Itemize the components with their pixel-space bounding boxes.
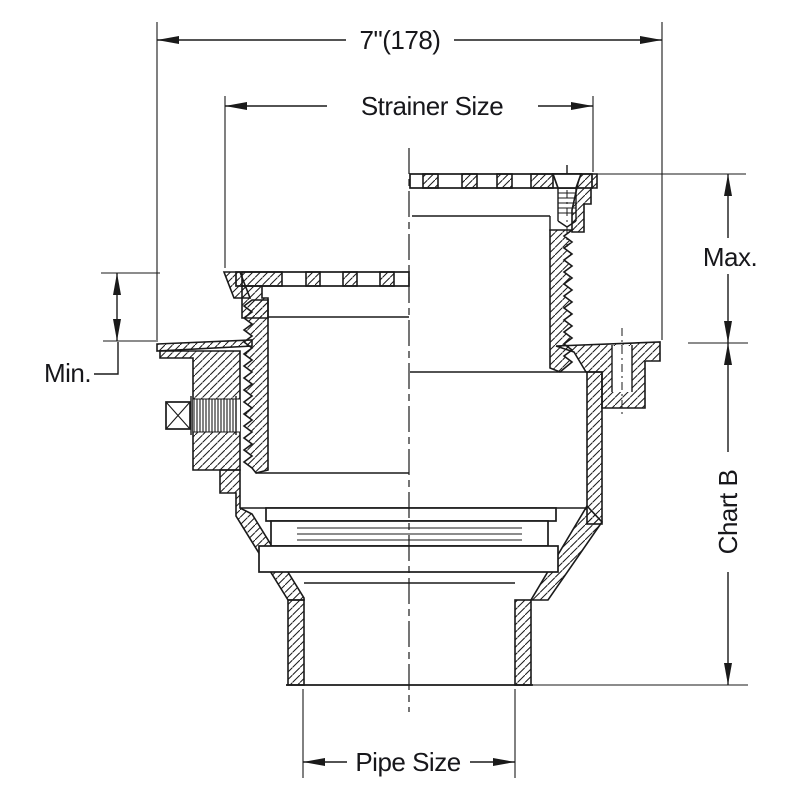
outlet-pipe-wall-left	[288, 600, 304, 685]
drain-cross-section-drawing: 7"(178) Strainer Size Max. Chart B Min.	[0, 0, 800, 800]
dim-label-total-width: 7"(178)	[360, 25, 441, 55]
floor-flange-right	[556, 342, 660, 408]
min-leader-line	[94, 342, 118, 374]
dim-label-chart-b: Chart B	[713, 470, 743, 555]
drain-body-right	[515, 328, 660, 685]
arrowhead-up	[724, 174, 732, 196]
dimension-min: Min.	[44, 273, 121, 388]
dimension-total-width: 7"(178)	[157, 25, 662, 55]
grate-slot	[343, 272, 357, 286]
grate-slot	[462, 174, 477, 188]
drawing-canvas: 7"(178) Strainer Size Max. Chart B Min.	[0, 0, 800, 800]
arrowhead-down	[724, 321, 732, 343]
arrowhead-right	[571, 102, 593, 110]
gasket-ring	[266, 508, 556, 521]
dim-label-pipe-size: Pipe Size	[355, 747, 460, 777]
grate-slot	[497, 174, 512, 188]
arrowhead-left	[303, 758, 325, 766]
grate-slot	[531, 174, 553, 188]
dimension-max: Max.	[703, 174, 757, 343]
interior-edges	[240, 372, 587, 508]
strainer-head-min-position	[224, 272, 409, 473]
grate-slot	[242, 272, 282, 286]
body-wall-right	[587, 372, 602, 524]
arrowhead-right	[493, 758, 515, 766]
arrowhead-left	[157, 36, 179, 44]
grate-slot	[423, 174, 438, 188]
arrowhead-up	[724, 343, 732, 365]
dim-label-min: Min.	[44, 358, 91, 388]
grate-slot	[306, 272, 320, 286]
grate-slot	[380, 272, 394, 286]
arrowhead-down	[113, 319, 121, 341]
outlet-pipe-wall-right	[515, 600, 531, 685]
arrowhead-right	[640, 36, 662, 44]
dim-label-max: Max.	[703, 242, 757, 272]
grate-screw-head	[553, 174, 581, 188]
arrowhead-down	[724, 663, 732, 685]
dimension-pipe-size: Pipe Size	[303, 747, 515, 777]
arrowhead-up	[113, 273, 121, 295]
dimension-chart-b: Chart B	[713, 343, 743, 685]
dim-label-strainer-size: Strainer Size	[361, 91, 503, 121]
threaded-barrel-right	[550, 230, 572, 372]
dimension-strainer-size: Strainer Size	[225, 91, 593, 121]
flashing-clamp-lip	[157, 340, 252, 351]
arrowhead-left	[225, 102, 247, 110]
strainer-head-max-position	[410, 165, 597, 372]
threaded-barrel-left	[244, 300, 268, 473]
